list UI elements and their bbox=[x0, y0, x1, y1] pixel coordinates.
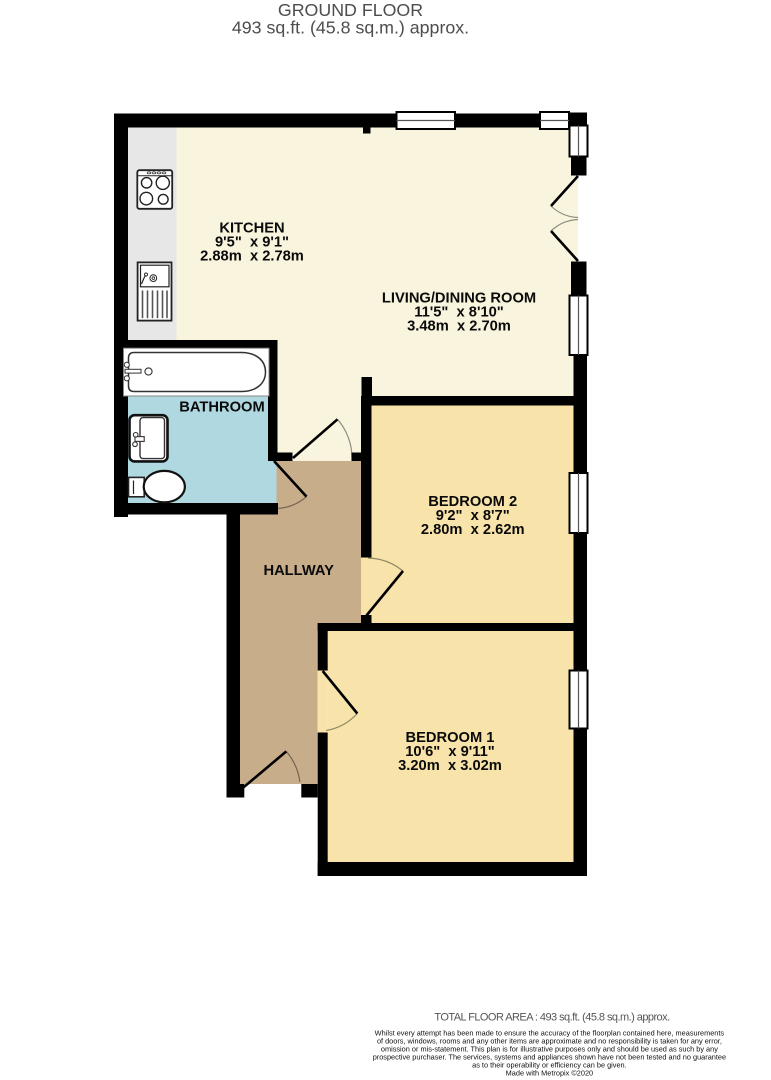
svg-text:HALLWAY: HALLWAY bbox=[263, 563, 334, 579]
svg-text:3.48m x 2.70m: 3.48m x 2.70m bbox=[407, 319, 511, 335]
svg-text:3.20m x 3.02m: 3.20m x 3.02m bbox=[398, 758, 502, 774]
svg-text:2.88m x 2.78m: 2.88m x 2.78m bbox=[200, 249, 304, 265]
svg-text:2.80m x 2.62m: 2.80m x 2.62m bbox=[421, 522, 525, 538]
svg-text:BATHROOM: BATHROOM bbox=[179, 400, 264, 416]
svg-text:493 sq.ft. (45.8 sq.m.) approx: 493 sq.ft. (45.8 sq.m.) approx. bbox=[232, 18, 469, 38]
svg-text:TOTAL FLOOR AREA : 493 sq.ft.: TOTAL FLOOR AREA : 493 sq.ft. (45.8 sq.m… bbox=[434, 1012, 670, 1024]
svg-text:Made with Metropix ©2020: Made with Metropix ©2020 bbox=[506, 1069, 593, 1078]
